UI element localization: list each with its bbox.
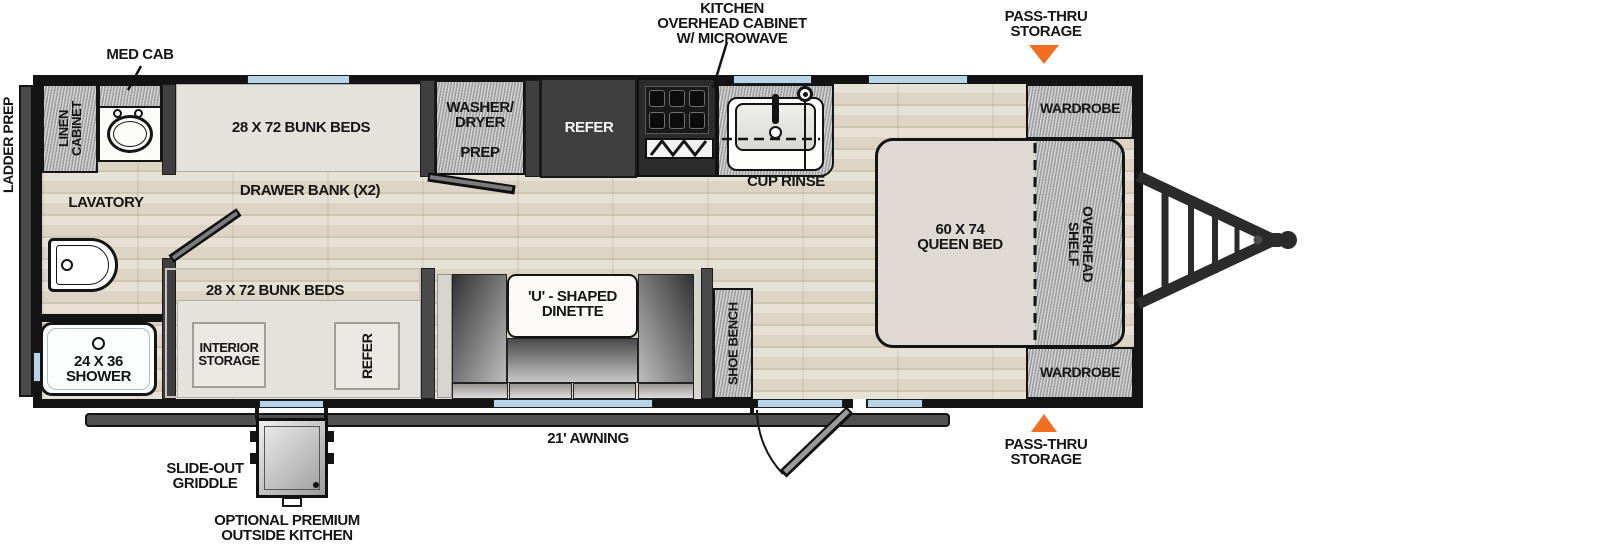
dinette-table-label: 'U' - SHAPED DINETTE [510, 289, 635, 319]
outside-kitchen-label: OPTIONAL PREMIUM OUTSIDE KITCHEN [192, 513, 382, 543]
ladder-prep-bar [19, 85, 33, 397]
refer-kitchen-label: REFER [550, 120, 628, 135]
griddle-tab [250, 431, 256, 442]
griddle-tab [328, 431, 334, 442]
floorplan-canvas: LADDER PREP LINEN CABINET LAVATORY 24 X … [0, 0, 1600, 548]
dinette-cushion [452, 383, 508, 399]
dinette-cushion [509, 383, 572, 399]
window-top-bedroom [868, 75, 968, 84]
queen-bed-label: 60 X 74 QUEEN BED [895, 222, 1025, 252]
burner [669, 90, 685, 107]
toilet-flush [61, 259, 73, 271]
vanity-faucet-dot [113, 109, 122, 118]
slide-out-griddle-label: SLIDE-OUT GRIDDLE [150, 461, 260, 491]
hitch-jack [1254, 236, 1263, 245]
window-top-sink [733, 75, 812, 84]
pass-thru-bottom-arrow [1031, 414, 1057, 432]
divider-post [525, 80, 540, 177]
dinette-cushion [638, 383, 694, 399]
dinette-right-panel [701, 268, 713, 399]
griddle-tab [328, 453, 334, 464]
window-bottom-door-right [867, 399, 923, 408]
bunk-beds-top-label: 28 X 72 BUNK BEDS [196, 120, 406, 135]
shower-drain [92, 337, 105, 350]
dinette-left-panel [421, 268, 435, 399]
window-top-bunk [247, 75, 350, 84]
slide-out-griddle-inner [264, 426, 320, 490]
window-bottom-dinette [493, 399, 653, 408]
griddle-foot [282, 497, 302, 507]
pass-thru-top-arrow [1029, 45, 1059, 64]
stove-oven-vent [645, 138, 714, 159]
drawer-bank-label: DRAWER BANK (X2) [225, 183, 395, 198]
cup-rinse-label: CUP RINSE [736, 174, 836, 189]
bunk-beds-bottom-label: 28 X 72 BUNK BEDS [180, 283, 370, 298]
shoe-bench-label: SHOE BENCH [719, 293, 747, 394]
burner [689, 90, 705, 107]
griddle-knob [313, 482, 319, 488]
griddle-bay-side [324, 399, 328, 420]
interior-storage-label: INTERIOR STORAGE [194, 341, 264, 367]
lavatory-label: LAVATORY [56, 195, 156, 210]
washer-dryer-label: WASHER/ DRYER [440, 100, 520, 130]
kitchen-faucet [772, 94, 779, 124]
med-cab-label: MED CAB [90, 47, 190, 62]
hitch-coupler [1255, 233, 1283, 247]
window-bottom-door-left [757, 399, 843, 408]
shower-label: 24 X 36 SHOWER [45, 354, 152, 384]
dinette-bench-right [638, 274, 694, 383]
kitchen-faucet-knob [769, 126, 782, 139]
linen-cabinet-label: LINEN CABINET [48, 90, 92, 167]
wardrobe-bottom-label: WARDROBE [1030, 365, 1130, 379]
cup-rinse-fixture-dot [803, 92, 808, 97]
pass-thru-bottom-label: PASS-THRU STORAGE [986, 437, 1106, 467]
pass-thru-top-label: PASS-THRU STORAGE [986, 9, 1106, 39]
hitch-frame [1138, 176, 1270, 304]
bath-shower-wall [33, 314, 162, 322]
med-cab [98, 84, 162, 108]
overhead-shelf-label: OVERHEAD SHELF [1060, 188, 1102, 300]
window-griddle-bay [259, 400, 324, 408]
vanity-faucet-dot [134, 109, 143, 118]
burner [669, 112, 685, 129]
washer-prep-label: PREP [440, 145, 520, 160]
kitchen-overhead-label: KITCHEN OVERHEAD CABINET W/ MICROWAVE [632, 1, 832, 46]
dinette-bench-middle [507, 338, 638, 383]
ladder-prep-label: LADDER PREP [0, 80, 19, 210]
awning-arm [750, 406, 754, 415]
entry-door-opening [852, 399, 866, 408]
hitch-ball [1279, 231, 1297, 249]
dinette-bench-left [452, 274, 507, 383]
awning-label: 21' AWNING [508, 431, 668, 446]
awning-bar [85, 413, 950, 427]
dinette-left-strip [437, 274, 452, 398]
bath-wall-upper [162, 84, 176, 175]
griddle-bay-side [255, 399, 259, 420]
dinette-cushion [573, 383, 636, 399]
vanity-sink-bowl-inner [113, 121, 147, 147]
burner [649, 90, 665, 107]
burner [649, 112, 665, 129]
divider-post [420, 80, 435, 177]
refer-bunk-label: REFER [350, 326, 384, 386]
wardrobe-top-label: WARDROBE [1030, 101, 1130, 115]
burner [689, 112, 705, 129]
